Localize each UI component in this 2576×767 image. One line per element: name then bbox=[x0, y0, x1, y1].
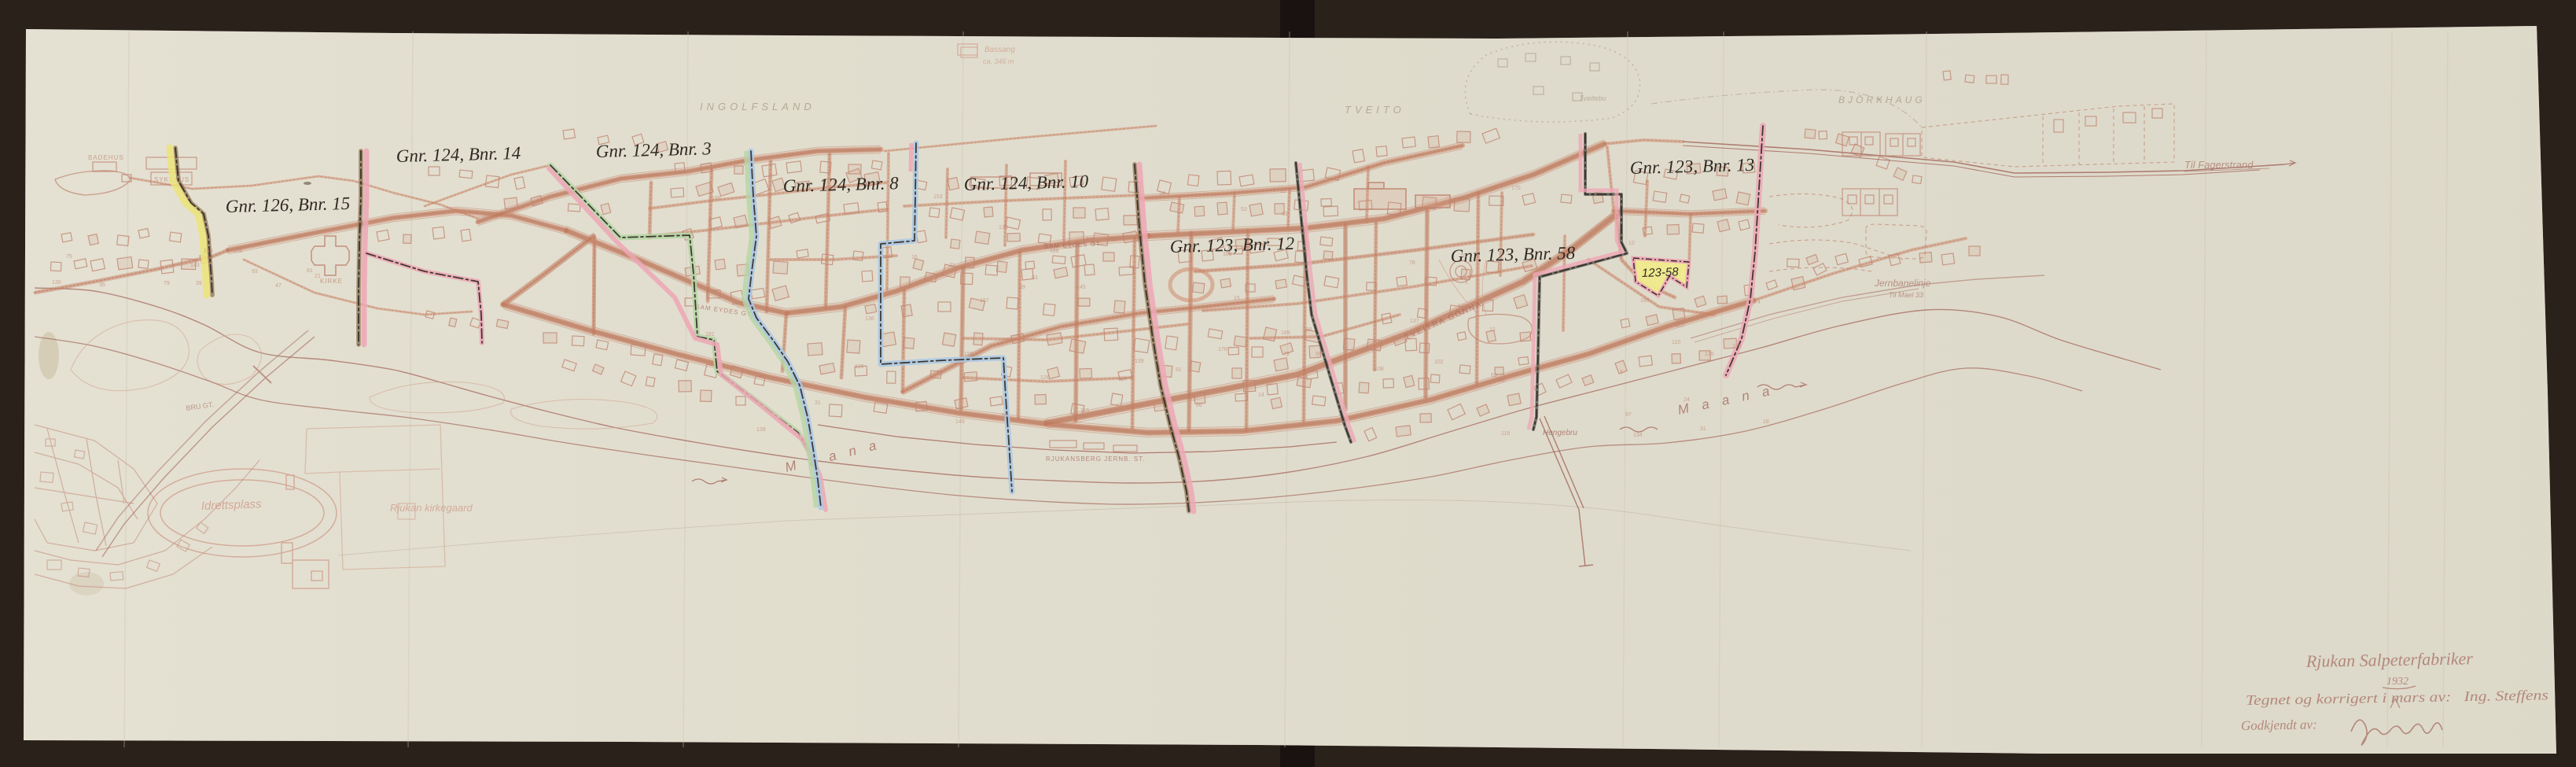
svg-text:130: 130 bbox=[52, 280, 61, 286]
svg-text:75: 75 bbox=[66, 254, 72, 260]
svg-text:Rjukan kirkegaard: Rjukan kirkegaard bbox=[390, 502, 473, 514]
svg-text:Gnr. 124, Bnr. 8: Gnr. 124, Bnr. 8 bbox=[782, 173, 899, 196]
svg-text:143: 143 bbox=[190, 263, 200, 268]
svg-text:Gnr. 124, Bnr. 10: Gnr. 124, Bnr. 10 bbox=[963, 171, 1089, 194]
svg-text:108: 108 bbox=[1374, 367, 1384, 372]
svg-text:198: 198 bbox=[1303, 327, 1312, 333]
svg-text:189: 189 bbox=[1281, 330, 1290, 336]
svg-text:Gnr. 124, Bnr. 3: Gnr. 124, Bnr. 3 bbox=[595, 138, 712, 161]
svg-text:188: 188 bbox=[1223, 252, 1232, 257]
svg-text:118: 118 bbox=[1086, 237, 1095, 242]
svg-text:36: 36 bbox=[1499, 378, 1505, 384]
svg-text:63: 63 bbox=[1032, 275, 1038, 281]
svg-text:39: 39 bbox=[1019, 285, 1025, 290]
svg-text:Gnr. 126, Bnr. 15: Gnr. 126, Bnr. 15 bbox=[225, 194, 350, 216]
svg-text:12: 12 bbox=[1489, 327, 1496, 333]
svg-text:197: 197 bbox=[1118, 377, 1128, 382]
svg-text:1932: 1932 bbox=[2386, 676, 2409, 688]
svg-text:39: 39 bbox=[196, 281, 202, 286]
svg-text:53: 53 bbox=[1185, 395, 1191, 400]
svg-text:63: 63 bbox=[1282, 212, 1288, 217]
svg-text:123-58: 123-58 bbox=[1642, 265, 1680, 280]
svg-text:195: 195 bbox=[712, 196, 721, 201]
svg-text:1: 1 bbox=[1465, 280, 1468, 286]
svg-text:5: 5 bbox=[1130, 376, 1133, 382]
svg-text:126: 126 bbox=[1732, 344, 1742, 349]
svg-text:18: 18 bbox=[1763, 419, 1769, 425]
svg-text:156: 156 bbox=[234, 249, 243, 254]
svg-text:5: 5 bbox=[1620, 370, 1623, 375]
svg-text:35: 35 bbox=[99, 282, 105, 288]
svg-text:Godkjendt av:: Godkjendt av: bbox=[2241, 717, 2317, 733]
svg-text:139: 139 bbox=[756, 427, 766, 433]
svg-text:15: 15 bbox=[1234, 296, 1240, 301]
svg-text:Bassang: Bassang bbox=[984, 46, 1015, 54]
svg-text:16: 16 bbox=[911, 255, 918, 260]
svg-text:126: 126 bbox=[1040, 375, 1050, 381]
svg-text:31: 31 bbox=[815, 400, 821, 406]
svg-text:136: 136 bbox=[865, 316, 874, 322]
svg-text:155: 155 bbox=[204, 249, 213, 254]
svg-text:134: 134 bbox=[1633, 433, 1643, 438]
svg-text:TVEITO: TVEITO bbox=[1345, 104, 1405, 116]
svg-text:12: 12 bbox=[1628, 241, 1635, 246]
svg-text:53: 53 bbox=[1241, 207, 1247, 212]
svg-text:91: 91 bbox=[1176, 367, 1182, 373]
svg-text:Jernbanelinje: Jernbanelinje bbox=[1874, 278, 1931, 289]
svg-text:199: 199 bbox=[1676, 320, 1685, 326]
svg-text:110: 110 bbox=[1672, 340, 1680, 345]
svg-text:BJÖRKHAUG: BJÖRKHAUG bbox=[1838, 94, 1926, 105]
svg-text:131: 131 bbox=[1458, 304, 1467, 309]
svg-text:Gnr. 123, Bnr. 58: Gnr. 123, Bnr. 58 bbox=[1450, 243, 1576, 266]
svg-text:79: 79 bbox=[164, 281, 170, 286]
svg-text:119: 119 bbox=[1613, 215, 1621, 220]
svg-text:86: 86 bbox=[1196, 403, 1202, 408]
svg-text:126: 126 bbox=[855, 364, 864, 370]
svg-text:115: 115 bbox=[1080, 408, 1089, 414]
svg-text:102: 102 bbox=[1434, 360, 1444, 365]
svg-text:1: 1 bbox=[808, 431, 811, 437]
svg-text:135: 135 bbox=[1705, 352, 1714, 357]
svg-text:Rjukan Salpeterfabriker: Rjukan Salpeterfabriker bbox=[2306, 648, 2474, 671]
svg-text:ca. 346 m: ca. 346 m bbox=[983, 57, 1014, 65]
svg-text:RJUKANSBERG JERNB. ST.: RJUKANSBERG JERNB. ST. bbox=[1046, 455, 1145, 463]
svg-text:81: 81 bbox=[307, 268, 313, 274]
svg-text:KIRKE: KIRKE bbox=[320, 278, 343, 285]
svg-text:24: 24 bbox=[1684, 397, 1690, 403]
svg-text:155: 155 bbox=[964, 352, 973, 357]
svg-text:79: 79 bbox=[1283, 352, 1290, 357]
svg-text:Gnr. 123, Bnr. 12: Gnr. 123, Bnr. 12 bbox=[1169, 234, 1294, 256]
svg-text:167: 167 bbox=[980, 298, 989, 304]
svg-text:56: 56 bbox=[1111, 238, 1117, 243]
svg-text:149: 149 bbox=[955, 419, 965, 425]
svg-text:INGOLFSLAND: INGOLFSLAND bbox=[700, 101, 815, 112]
svg-text:Tveitebu: Tveitebu bbox=[1579, 94, 1606, 102]
svg-text:170: 170 bbox=[1511, 186, 1521, 191]
svg-text:47: 47 bbox=[275, 283, 282, 289]
svg-text:BADEHUS: BADEHUS bbox=[88, 154, 124, 161]
svg-text:145: 145 bbox=[1076, 285, 1086, 290]
svg-text:31: 31 bbox=[1700, 426, 1706, 432]
svg-text:Gnr. 124, Bnr. 14: Gnr. 124, Bnr. 14 bbox=[396, 143, 521, 166]
svg-text:Idrettsplass: Idrettsplass bbox=[201, 497, 263, 513]
svg-text:74: 74 bbox=[1754, 300, 1761, 305]
svg-text:97: 97 bbox=[1625, 412, 1632, 418]
svg-text:55: 55 bbox=[1002, 413, 1008, 419]
svg-text:137: 137 bbox=[1410, 319, 1419, 324]
svg-text:93: 93 bbox=[252, 269, 258, 275]
svg-text:186: 186 bbox=[1050, 249, 1059, 254]
svg-text:185: 185 bbox=[1640, 298, 1650, 304]
svg-text:21: 21 bbox=[949, 263, 955, 268]
svg-text:Til Mael 33: Til Mael 33 bbox=[1889, 291, 1923, 299]
svg-text:56: 56 bbox=[1316, 352, 1322, 357]
svg-text:Hengebru: Hengebru bbox=[1543, 429, 1577, 437]
svg-text:14: 14 bbox=[1258, 393, 1264, 398]
svg-text:132: 132 bbox=[1064, 245, 1073, 250]
svg-text:153: 153 bbox=[933, 194, 943, 200]
svg-text:78: 78 bbox=[1409, 260, 1415, 266]
svg-text:139: 139 bbox=[1135, 359, 1144, 364]
svg-text:119: 119 bbox=[1501, 431, 1510, 437]
svg-text:138: 138 bbox=[999, 225, 1008, 230]
svg-text:34: 34 bbox=[1159, 191, 1165, 197]
svg-text:89: 89 bbox=[1280, 189, 1286, 194]
svg-text:51: 51 bbox=[1461, 253, 1467, 259]
svg-text:176: 176 bbox=[1218, 347, 1227, 352]
svg-text:21: 21 bbox=[315, 274, 321, 279]
svg-text:Gnr. 123, Bnr. 13: Gnr. 123, Bnr. 13 bbox=[1629, 155, 1754, 178]
svg-text:63: 63 bbox=[1491, 373, 1497, 378]
svg-text:181: 181 bbox=[705, 332, 715, 337]
